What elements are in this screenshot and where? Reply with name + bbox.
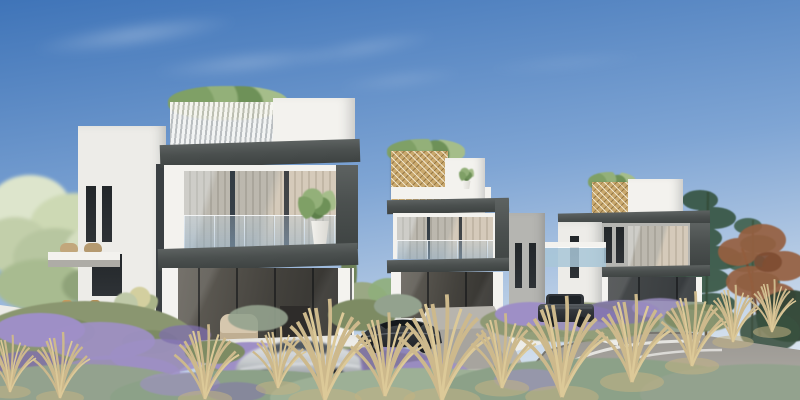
foreground-landscape	[0, 0, 800, 400]
architectural-render	[0, 0, 800, 400]
